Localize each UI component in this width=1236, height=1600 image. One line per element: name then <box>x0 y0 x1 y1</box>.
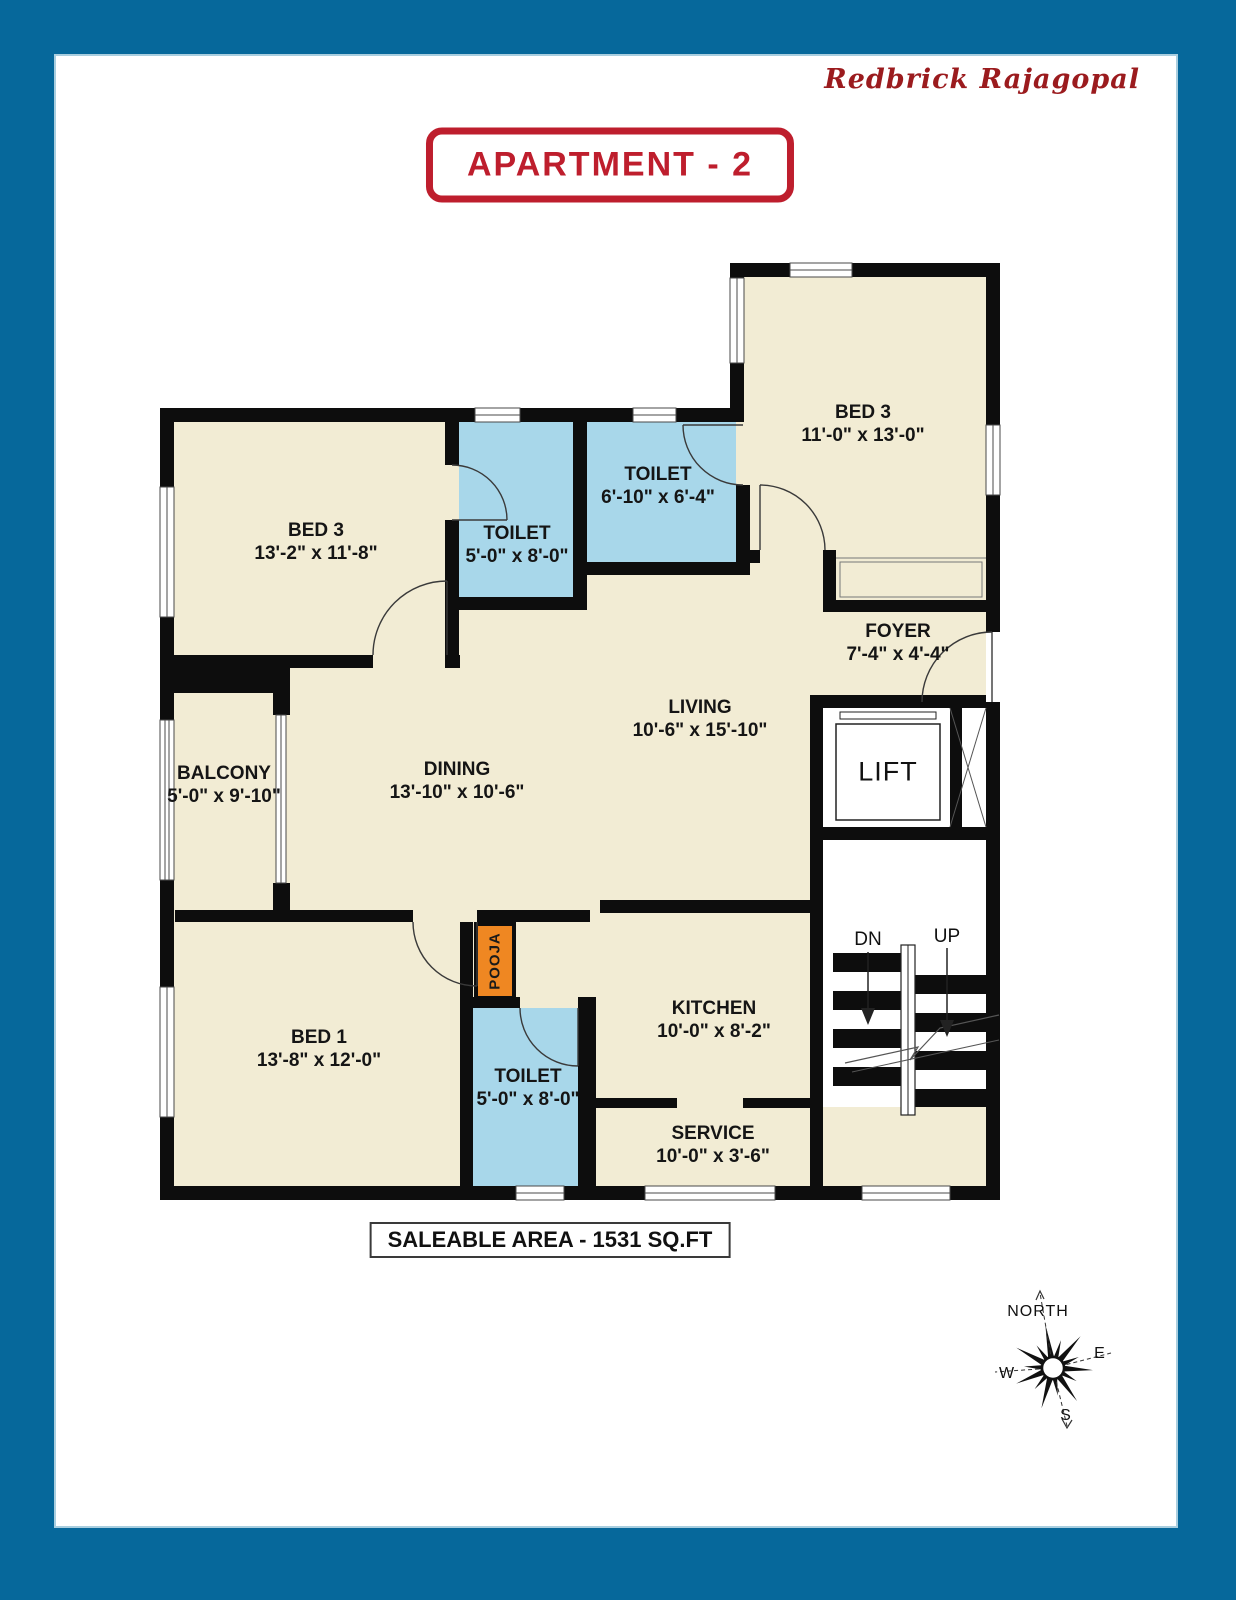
room-label-bed1: BED 1 13'-8" x 12'-0" <box>257 1026 381 1072</box>
room-dims: 7'-4" x 4'-4" <box>846 643 949 666</box>
room-dims: 13'-2" x 11'-8" <box>254 542 377 565</box>
room-dims: 11'-0" x 13'-0" <box>801 424 924 447</box>
room-label-foyer: FOYER 7'-4" x 4'-4" <box>846 620 949 666</box>
room-name: LIVING <box>668 697 731 718</box>
compass-east-label: E <box>1094 1345 1106 1363</box>
compass-north-label: NORTH <box>1007 1303 1069 1321</box>
brand-logo-text: Redbrick Rajagopal <box>824 64 1140 95</box>
room-name: DINING <box>424 759 491 780</box>
room-label-balcony: BALCONY 5'-0" x 9'-10" <box>167 762 281 808</box>
room-label-service: SERVICE 10'-0" x 3'-6" <box>656 1122 770 1168</box>
saleable-area-box: SALEABLE AREA - 1531 SQ.FT <box>370 1222 731 1258</box>
floor-plan-page: Redbrick Rajagopal APARTMENT - 2 BED 3 1… <box>0 0 1236 1600</box>
room-dims: 10'-0" x 3'-6" <box>656 1145 770 1168</box>
room-name: BED 1 <box>291 1027 347 1048</box>
stair-landing-floor <box>823 1107 986 1186</box>
room-dims: 5'-0" x 9'-10" <box>167 785 281 808</box>
room-dims: 5'-0" x 8'-0" <box>465 545 568 568</box>
room-label-toilet-bottom: TOILET 5'-0" x 8'-0" <box>476 1065 579 1111</box>
room-dims: 13'-10" x 10'-6" <box>390 781 525 804</box>
compass-south-label: S <box>1060 1407 1072 1425</box>
room-name: SERVICE <box>671 1123 754 1144</box>
stairs-up-label: UP <box>934 926 960 948</box>
room-name: KITCHEN <box>672 998 756 1019</box>
room-dims: 6'-10" x 6'-4" <box>601 486 715 509</box>
room-name: TOILET <box>483 523 550 544</box>
compass-west-label: W <box>999 1365 1015 1383</box>
room-name: FOYER <box>865 621 930 642</box>
room-label-dining: DINING 13'-10" x 10'-6" <box>390 758 525 804</box>
room-name: BED 3 <box>288 520 344 541</box>
room-name: TOILET <box>494 1066 561 1087</box>
stairs-down-label: DN <box>854 929 881 951</box>
room-dims: 10'-0" x 8'-2" <box>657 1020 771 1043</box>
lift-label: LIFT <box>858 757 918 788</box>
room-name: TOILET <box>624 464 691 485</box>
room-name: BED 3 <box>835 402 891 423</box>
room-label-kitchen: KITCHEN 10'-0" x 8'-2" <box>657 997 771 1043</box>
room-label-toilet-left: TOILET 5'-0" x 8'-0" <box>465 522 568 568</box>
room-label-living: LIVING 10'-6" x 15'-10" <box>633 696 768 742</box>
room-label-toilet-top: TOILET 6'-10" x 6'-4" <box>601 463 715 509</box>
room-label-bed3-top: BED 3 11'-0" x 13'-0" <box>801 401 924 447</box>
room-dims: 13'-8" x 12'-0" <box>257 1049 381 1072</box>
room-dims: 5'-0" x 8'-0" <box>476 1088 579 1111</box>
room-name: BALCONY <box>177 763 271 784</box>
page-title: APARTMENT - 2 <box>426 128 794 203</box>
pooja-label: POOJA <box>487 932 504 990</box>
room-label-bed3-left: BED 3 13'-2" x 11'-8" <box>254 519 377 565</box>
room-dims: 10'-6" x 15'-10" <box>633 719 768 742</box>
